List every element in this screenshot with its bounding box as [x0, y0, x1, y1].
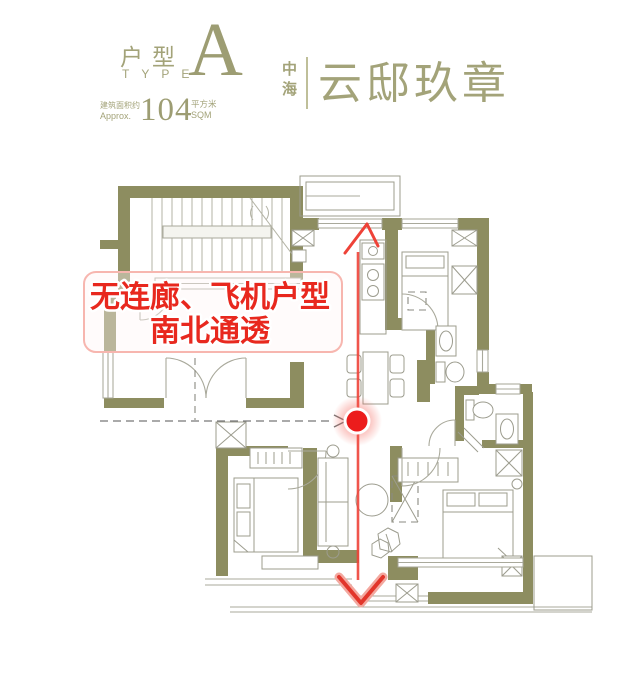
stair-break-mark: [251, 206, 269, 220]
floorplan-poster: 户型 TYPE A 建筑面积约 Approx. 104 平方米 SQM 中 海 …: [0, 0, 640, 683]
north-balcony: [300, 176, 400, 216]
east-terrace: [534, 556, 592, 610]
shaft-box: [292, 230, 314, 262]
bath-door: [429, 420, 455, 446]
closet-icon: [398, 458, 458, 482]
double-bed: [443, 490, 513, 562]
sink-icon: [496, 414, 518, 444]
kitchen-stove: [362, 264, 384, 300]
dining-table: [363, 352, 388, 404]
side-table: [327, 445, 339, 457]
sofa: [318, 458, 348, 546]
nightstand: [512, 479, 522, 489]
bedroom-north: [402, 230, 477, 330]
shaft-box: [396, 584, 418, 602]
annotation-line1: 无连廊、飞机户型: [90, 280, 330, 314]
ensuite-bath: [436, 326, 464, 382]
bath-window: [496, 384, 520, 394]
shaft-box: [216, 422, 246, 448]
toilet-icon: [436, 362, 464, 382]
annotation-line2: 南北通透: [150, 315, 270, 348]
entry-door-left: [166, 358, 206, 398]
stair-landing: [163, 226, 271, 238]
wardrobe-icon: [452, 230, 477, 294]
chair: [390, 355, 404, 373]
bench: [262, 556, 318, 569]
annotation: 无连廊、飞机户型 南北通透: [84, 272, 342, 352]
route-arrow-south-outer: [339, 577, 383, 603]
right-window: [477, 350, 488, 372]
plant-icon: [372, 528, 400, 558]
entry-door-right: [206, 358, 246, 398]
single-bed: [402, 252, 448, 330]
floorplan-drawing: 无连廊、飞机户型 南北通透: [0, 0, 640, 683]
toilet-icon: [466, 400, 493, 420]
foyer-window: [103, 352, 113, 398]
wardrobe-icon: [496, 450, 522, 476]
sink-icon: [436, 326, 456, 356]
route-dot: [347, 411, 368, 432]
chair: [390, 379, 404, 397]
kitchen-sink: [362, 243, 384, 259]
round-table: [356, 484, 388, 516]
